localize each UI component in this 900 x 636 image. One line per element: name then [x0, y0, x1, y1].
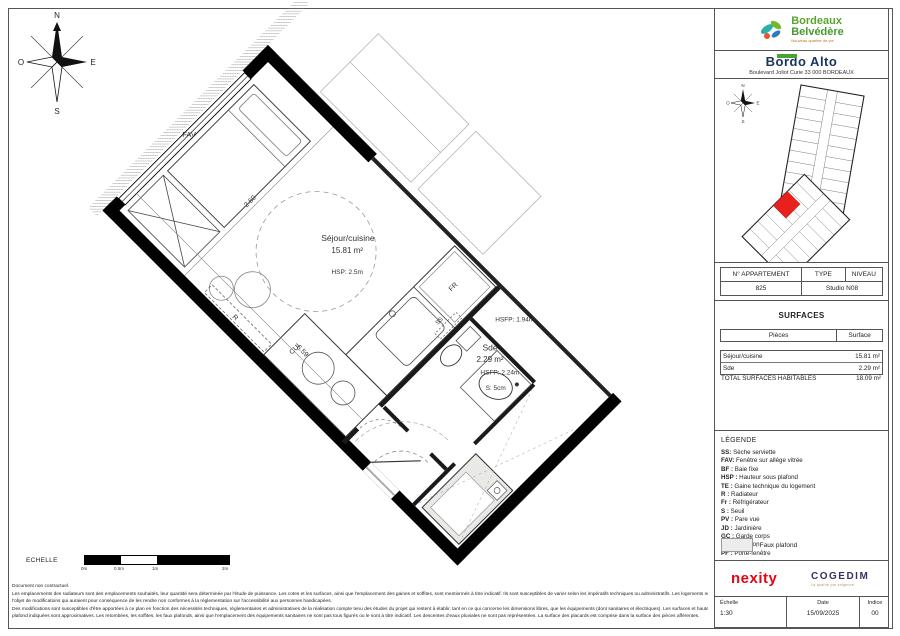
room-sejour-area: 15.81 m² [331, 246, 363, 255]
surfaces-title: SURFACES [715, 311, 888, 320]
siteplan-compass-s: S [741, 119, 744, 124]
apt-type-level: Studio N08 [802, 282, 883, 296]
radiator-label: R [231, 314, 240, 323]
compass-o: O [18, 58, 24, 67]
fav-label: FAV [182, 130, 196, 139]
titleblock-date: Date 15/09/2025 [786, 597, 859, 627]
apartment-plan: FAV 6.59 2.60 Séjour/cuisine 15.81 m² HS… [88, 0, 683, 571]
legend-item: BF : Baie fixe [721, 466, 888, 474]
room-sde-name: Sde [482, 342, 497, 352]
apt-number: 825 [721, 282, 802, 296]
room-sejour-name: Séjour/cuisine [321, 233, 375, 243]
legend-faux-plafond: : Faux plafond [721, 538, 797, 552]
surface-room: Sde [721, 365, 837, 372]
brand-box: Bordeaux Belvédère Nouveau quartier de v… [714, 8, 889, 51]
scale-tick: 2m [222, 566, 228, 571]
legend-item: S : Seuil [721, 508, 888, 516]
room-sde-area: 2.29 m² [476, 355, 503, 364]
bordeaux-belvedere-logo-icon [759, 17, 785, 43]
compass-rose: N S E O [18, 11, 96, 116]
scale-segment [85, 556, 121, 564]
surfaces-header: Pièces Surface [720, 329, 883, 342]
seuil-label: S: 5cm [486, 385, 506, 392]
hsfp1-label: HSFP: 1.94m [495, 317, 534, 324]
scale-segment [157, 556, 229, 564]
residence-badge [777, 54, 797, 58]
legend-item: FAV: Fenêtre sur allège vitrée [721, 457, 888, 465]
disclaimer-line: plafond indiquées sont approximatives. L… [12, 613, 708, 621]
legend-item: JD : Jardinière [721, 525, 888, 533]
apartment-table: N° APPARTEMENT TYPE NIVEAU 825 Studio N0… [720, 267, 883, 296]
disclaimer-line: Document non contractuel. [12, 583, 708, 591]
surfaces-col-room: Pièces [721, 330, 837, 341]
legend-item: PV : Pare vue [721, 516, 888, 524]
legend-item: R : Radiateur [721, 491, 888, 499]
faux-plafond-swatch [721, 538, 753, 552]
titleblock-scale: Échelle 1:30 [715, 597, 786, 627]
disclaimer: Document non contractuel. Les emplacemen… [12, 583, 708, 621]
scale-segment [121, 556, 157, 564]
project-box: Bordo Alto Boulevard Joliot Curie 33 000… [714, 50, 889, 79]
hsfp2-label: HSFP: 2.24m [480, 370, 519, 377]
legend-item: Fr : Réfrigérateur [721, 499, 888, 507]
titleblock-index: Indice 00 [859, 597, 890, 627]
legend-title: LÉGENDE [721, 437, 888, 444]
compass-e: E [90, 58, 95, 67]
right-panel: Bordeaux Belvédère Nouveau quartier de v… [714, 8, 891, 628]
floorplan-sheet: N S E O [0, 0, 900, 636]
legend-box: LÉGENDE SS: Sèche serviette FAV: Fenêtre… [714, 430, 889, 561]
stool-circle-2 [204, 271, 238, 305]
surfaces-rows: Séjour/cuisine 15.81 m² Sde 2.29 m² [720, 350, 883, 375]
nexity-logo: nexity [731, 570, 777, 587]
floorplan-drawing: N S E O [0, 0, 712, 580]
project-name: Bordo Alto [715, 54, 888, 69]
room-sejour-hsp: HSP: 2.5m [331, 269, 362, 276]
scale-value: 1:30 [715, 610, 786, 617]
scale-tick: 1m [152, 566, 158, 571]
brand-tagline: Nouveau quartier de vie [791, 39, 844, 43]
apt-col-number: N° APPARTEMENT [721, 268, 802, 282]
brand-name-line2: Belvédère [791, 27, 844, 38]
siteplan-compass-o: O [726, 101, 730, 106]
titleblock: Échelle 1:30 Date 15/09/2025 Indice 00 [714, 596, 889, 628]
scale-label: Échelle [715, 600, 786, 606]
scale-bar [84, 555, 230, 565]
scale-tick: 0m [81, 566, 87, 571]
table-row: Sde 2.29 m² [721, 362, 882, 374]
surfaces-box: SURFACES Pièces Surface Séjour/cuisine 1… [714, 300, 889, 431]
index-label: Indice [860, 600, 890, 606]
disclaimer-line: Des modifications sont susceptibles d'êt… [12, 606, 708, 614]
surface-value: 15.81 m² [837, 353, 882, 360]
compass-n: N [54, 11, 60, 20]
scale-area: ECHELLE 0m 0.5m 1m 2m [26, 552, 256, 576]
date-value: 15/09/2025 [787, 610, 859, 617]
siteplan-compass-n: N [741, 83, 744, 88]
surface-room: Séjour/cuisine [721, 353, 837, 360]
legend-item: HSP : Hauteur sous plafond [721, 474, 888, 482]
faux-plafond-label: : Faux plafond [756, 542, 797, 549]
surface-value: 2.29 m² [837, 365, 882, 372]
legend-item: TE : Gaine technique du logement [721, 483, 888, 491]
apt-col-level: NIVEAU [845, 268, 882, 282]
date-label: Date [787, 600, 859, 606]
index-value: 00 [860, 610, 890, 617]
scale-tick: 0.5m [114, 566, 124, 571]
compass-s: S [54, 107, 59, 116]
surfaces-total-row: TOTAL SURFACES HABITABLES 18.09 m² [720, 375, 883, 382]
siteplan-drawing: N S E O [715, 79, 888, 262]
legend-item: SS: Sèche serviette [721, 449, 888, 457]
siteplan-box: N S E O [714, 78, 889, 263]
project-address: Boulevard Joliot Curie 33 000 BORDEAUX [715, 70, 888, 76]
scale-title: ECHELLE [26, 557, 58, 564]
logos-box: nexity COGEDIM La qualité par exigence [714, 560, 889, 597]
table-row: Séjour/cuisine 15.81 m² [721, 351, 882, 362]
surfaces-total-label: TOTAL SURFACES HABITABLES [720, 375, 836, 382]
siteplan-compass: N S E O [726, 83, 759, 124]
apt-col-type: TYPE [802, 268, 846, 282]
cogedim-tagline: La qualité par exigence [811, 583, 854, 587]
siteplan-compass-e: E [756, 101, 759, 106]
disclaimer-line: l'objet de modifications qui auraient po… [12, 598, 708, 606]
surfaces-total-value: 18.09 m² [836, 375, 883, 382]
bed [168, 85, 311, 228]
apartment-table-box: N° APPARTEMENT TYPE NIVEAU 825 Studio N0… [714, 262, 889, 301]
cogedim-logo: COGEDIM [811, 571, 869, 582]
surfaces-col-surface: Surface [837, 330, 882, 341]
disclaimer-line: Les emplacements des radiateurs sont des… [12, 591, 708, 599]
